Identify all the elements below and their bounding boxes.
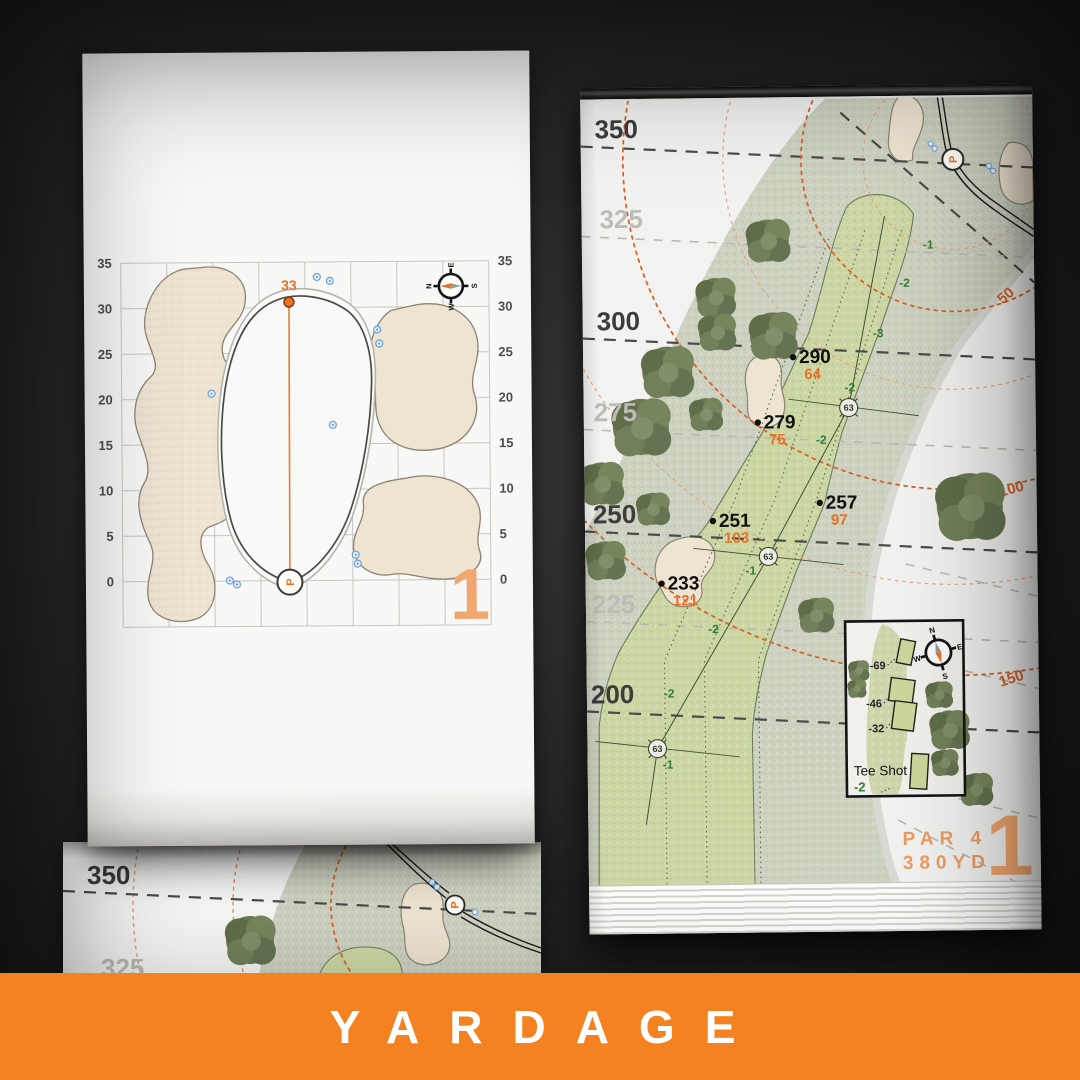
axis-tick: 20 (499, 390, 514, 405)
pin-marker: P (942, 149, 963, 170)
tee-distance: -46 (866, 698, 882, 710)
bunker-right-upper (369, 303, 478, 450)
tee-shot-inset: -69 -46 -32 Tee Shot -2 (845, 619, 971, 796)
hole-map: N E S W (580, 96, 1041, 888)
yardage-book-mockup: N E S W (0, 0, 1080, 1080)
tee-shot-title: Tee Shot (854, 763, 908, 779)
slope-label: -2 (844, 380, 855, 394)
bottom-booklet-spread: P 350 325 (63, 842, 541, 980)
distance-label: 200 (591, 679, 635, 709)
front-edge-dot (284, 297, 294, 307)
carry-value: 257 (826, 492, 858, 513)
tree (225, 916, 276, 966)
green-detail-chart: N E S W (82, 50, 535, 846)
carry-value: 290 (799, 347, 831, 368)
carry-value: 279 (764, 412, 796, 433)
bottom-spread-map: P 350 325 (63, 842, 541, 980)
to-pin-value: 97 (831, 512, 848, 529)
right-booklet-page: N E S W (580, 83, 1042, 934)
par-label: PAR 4 (902, 828, 987, 850)
axis-tick: 10 (99, 483, 114, 498)
slope-label: -2 (816, 433, 827, 447)
distance-label: 325 (599, 204, 643, 234)
distance-label: 250 (593, 499, 637, 529)
page-stack-edges (589, 880, 1042, 934)
slope-label: -3 (873, 326, 884, 340)
sprinkler-yardage: 63 (844, 403, 854, 413)
axis-tick: 0 (500, 572, 507, 587)
axis-tick: 35 (97, 256, 112, 271)
axis-tick: 20 (98, 392, 113, 407)
page-roll-shadow (87, 785, 534, 846)
axis-tick: 15 (98, 438, 113, 453)
yardage-label: 380YD (903, 852, 991, 874)
hole-number: 1 (985, 797, 1034, 888)
axis-tick: 30 (498, 299, 513, 314)
axis-tick: 5 (106, 529, 113, 544)
green-entry-marker: P (277, 570, 302, 595)
axis-tick: 5 (500, 526, 507, 541)
axis-tick: 10 (499, 481, 514, 496)
slope-label: -1 (663, 758, 674, 772)
slope-label: -2 (708, 622, 719, 636)
distance-label: 275 (594, 397, 638, 427)
slope-label: -1 (923, 238, 934, 252)
distance-label: 350 (594, 114, 638, 144)
rough-area (258, 842, 541, 980)
yardage-banner: YARDAGE (0, 973, 1080, 1080)
sprinkler-yardage: 63 (763, 552, 773, 562)
axis-tick: 30 (97, 301, 112, 316)
tee-distance: -32 (868, 723, 884, 735)
to-pin-value: 75 (769, 431, 786, 448)
axis-tick: 35 (498, 253, 513, 268)
distance-label: 225 (592, 589, 636, 619)
hole-number: 1 (450, 555, 491, 635)
to-pin-value: 121 (673, 592, 698, 609)
to-pin-value: 103 (724, 530, 749, 547)
front-carry-label: 33 (281, 277, 297, 293)
pin-letter: P (948, 156, 960, 163)
pin-letter: P (450, 901, 462, 908)
sprinkler-yardage: 63 (652, 744, 662, 754)
tee-distance: -69 (870, 660, 886, 672)
axis-tick: 25 (498, 344, 513, 359)
slope-label: -1 (745, 564, 756, 578)
slope-label: -2 (899, 276, 910, 290)
tee-shot-slope: -2 (854, 779, 866, 794)
distance-label: 350 (87, 860, 130, 890)
pin-marker: P (446, 896, 465, 915)
axis-tick: 15 (499, 435, 514, 450)
axis-tick: 25 (98, 347, 113, 362)
bunker (999, 142, 1034, 204)
left-booklet-page: N E S W (82, 50, 535, 846)
axis-tick: 0 (107, 574, 114, 589)
banner-title: YARDAGE (315, 1000, 766, 1054)
distance-label: 300 (596, 306, 640, 336)
entry-pin-letter: P (285, 578, 297, 585)
to-pin-value: 64 (804, 366, 822, 383)
slope-label: -2 (664, 687, 675, 701)
